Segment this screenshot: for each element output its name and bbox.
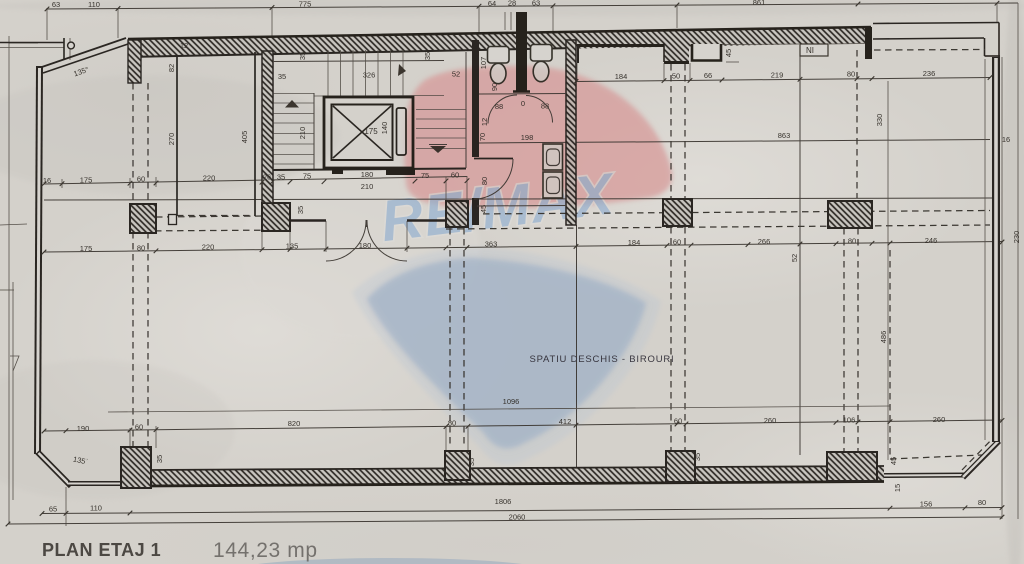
- svg-text:156: 156: [920, 500, 933, 509]
- svg-text:60: 60: [673, 238, 681, 247]
- svg-text:60: 60: [137, 175, 145, 184]
- svg-text:863: 863: [778, 131, 791, 140]
- svg-text:66: 66: [704, 71, 712, 80]
- svg-text:28: 28: [508, 0, 516, 8]
- svg-text:220: 220: [203, 174, 216, 183]
- svg-text:16: 16: [1002, 135, 1010, 144]
- svg-text:236: 236: [923, 69, 936, 78]
- svg-text:NI: NI: [806, 46, 814, 55]
- svg-text:260: 260: [933, 415, 946, 424]
- svg-text:135: 135: [286, 242, 299, 251]
- svg-text:190: 190: [77, 424, 90, 433]
- svg-text:35: 35: [693, 453, 702, 461]
- svg-text:63: 63: [532, 0, 540, 8]
- svg-text:2060: 2060: [509, 513, 526, 522]
- svg-text:861: 861: [753, 0, 766, 7]
- svg-text:220: 220: [202, 243, 215, 252]
- svg-text:106: 106: [843, 416, 856, 425]
- svg-text:180: 180: [361, 170, 374, 179]
- svg-text:110: 110: [88, 0, 100, 9]
- svg-text:12: 12: [180, 41, 188, 50]
- svg-text:260: 260: [764, 416, 777, 425]
- svg-text:175: 175: [80, 244, 93, 253]
- svg-text:326: 326: [363, 71, 376, 80]
- svg-text:35: 35: [155, 455, 164, 463]
- svg-text:210: 210: [361, 182, 374, 191]
- svg-text:PLAN ETAJ 1: PLAN ETAJ 1: [42, 540, 161, 560]
- svg-text:63: 63: [52, 0, 60, 9]
- svg-text:52: 52: [790, 254, 799, 262]
- svg-text:405: 405: [240, 131, 249, 144]
- svg-text:35: 35: [467, 458, 476, 466]
- svg-text:35: 35: [423, 52, 432, 60]
- svg-text:80: 80: [448, 419, 456, 428]
- svg-text:15: 15: [893, 484, 902, 492]
- svg-text:80: 80: [848, 237, 856, 246]
- svg-text:184: 184: [628, 238, 641, 247]
- svg-text:80: 80: [847, 70, 855, 79]
- svg-text:140: 140: [380, 122, 389, 135]
- svg-text:246: 246: [925, 236, 938, 245]
- svg-text:184: 184: [615, 72, 628, 81]
- svg-text:230: 230: [1012, 231, 1021, 244]
- svg-text:80: 80: [137, 244, 145, 253]
- svg-text:210: 210: [298, 127, 307, 140]
- svg-text:16: 16: [43, 176, 51, 185]
- svg-text:266: 266: [758, 237, 771, 246]
- svg-text:1806: 1806: [495, 497, 512, 506]
- svg-text:820: 820: [288, 419, 301, 428]
- svg-text:775: 775: [299, 0, 312, 9]
- svg-text:219: 219: [771, 71, 784, 80]
- svg-text:64: 64: [488, 0, 496, 8]
- svg-text:60: 60: [674, 417, 682, 426]
- svg-text:180: 180: [359, 241, 372, 250]
- svg-text:50: 50: [672, 72, 680, 81]
- svg-text:60: 60: [135, 423, 143, 432]
- svg-text:80: 80: [978, 498, 986, 507]
- svg-text:35: 35: [277, 173, 285, 182]
- svg-text:110: 110: [90, 504, 102, 513]
- svg-text:65: 65: [49, 505, 57, 514]
- svg-text:45: 45: [724, 49, 733, 57]
- svg-text:35: 35: [278, 72, 286, 81]
- svg-text:82: 82: [167, 64, 176, 72]
- svg-text:45: 45: [889, 457, 898, 465]
- svg-text:35: 35: [296, 206, 305, 214]
- svg-text:175: 175: [80, 176, 93, 185]
- svg-text:363: 363: [485, 240, 498, 249]
- svg-text:330: 330: [875, 114, 884, 127]
- svg-text:486: 486: [879, 331, 888, 344]
- svg-text:75: 75: [303, 172, 311, 181]
- svg-text:26: 26: [263, 173, 271, 182]
- svg-text:144,23 mp: 144,23 mp: [213, 539, 318, 562]
- svg-text:35: 35: [298, 52, 307, 60]
- svg-text:175: 175: [364, 127, 378, 136]
- svg-text:270: 270: [167, 133, 176, 146]
